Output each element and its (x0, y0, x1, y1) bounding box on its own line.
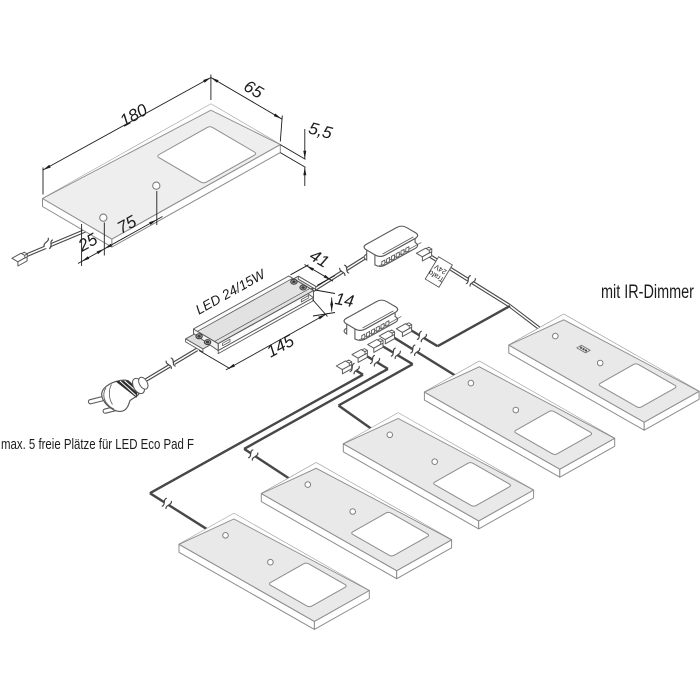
svg-text:max. 5 freie Plätze für LED Ec: max. 5 freie Plätze für LED Eco Pad F (1, 437, 194, 453)
svg-text:14: 14 (333, 289, 355, 311)
svg-text:mit IR-Dimmer: mit IR-Dimmer (601, 281, 694, 303)
